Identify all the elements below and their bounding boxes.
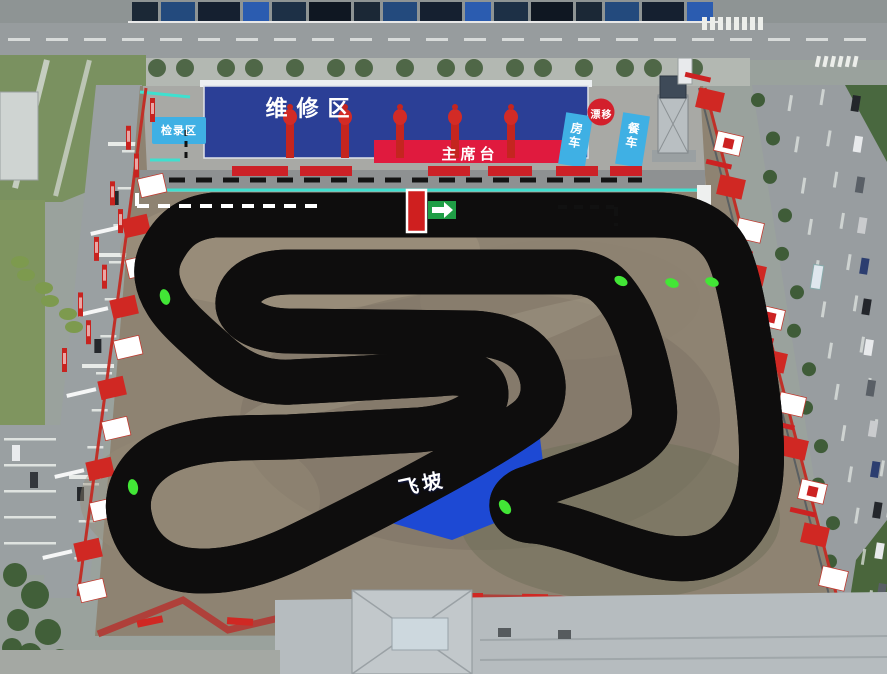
tree (814, 439, 828, 453)
lane-dash (236, 38, 258, 41)
tree (506, 59, 524, 77)
lane-dash (806, 38, 828, 41)
parking-bay-line (92, 409, 108, 412)
lane-dash (844, 38, 866, 41)
tree (148, 59, 166, 77)
site-map-canvas (0, 0, 887, 674)
lane-dash (46, 38, 68, 41)
billboard-panel (605, 2, 639, 21)
banner-flag-text (79, 297, 82, 308)
parking-bay-line (87, 446, 103, 449)
billboard-panel (198, 2, 240, 21)
tree (763, 170, 777, 184)
billboard-panel (494, 2, 528, 21)
lane-dash (464, 38, 486, 41)
lane-dash (692, 38, 714, 41)
banner-flag-text (111, 186, 114, 197)
parking-bay-line (96, 372, 112, 375)
aerial-site-photo: 维修区 检录区 主席台 漂移 房车 餐车 飞坡 (0, 0, 887, 674)
bush (41, 295, 59, 307)
building-top-left (0, 92, 38, 180)
tree (465, 59, 483, 77)
tree (751, 93, 765, 107)
crosswalk-bar (710, 17, 715, 30)
gate-booth (678, 58, 692, 84)
tree (3, 563, 27, 587)
billboard-panel (687, 2, 713, 21)
main-stage-label: 主席台 (400, 143, 540, 164)
crosswalk-bar (718, 17, 723, 30)
lane-dash (426, 38, 448, 41)
banner-flag-text (151, 103, 154, 114)
tree (21, 581, 49, 609)
tree (787, 324, 801, 338)
tree (778, 208, 792, 222)
tree (775, 247, 789, 261)
crosswalk-bar (734, 17, 739, 30)
parked-car (30, 472, 38, 488)
billboard-panel (161, 2, 195, 21)
drift-zone-label: 漂移 (588, 106, 615, 121)
red-carpet-block (232, 166, 288, 176)
lane-dash (160, 38, 182, 41)
tree (355, 59, 373, 77)
billboard-panel (642, 2, 684, 21)
tree (286, 59, 304, 77)
tree (437, 59, 455, 77)
tree (802, 362, 816, 376)
tree (327, 59, 345, 77)
red-carpet-block (300, 166, 352, 176)
lane-dash (730, 38, 752, 41)
lane-dash (312, 38, 334, 41)
lane-dash (616, 38, 638, 41)
red-carpet-block (556, 166, 598, 176)
lane-dash (768, 38, 790, 41)
banner-flag-text (103, 270, 106, 281)
banner-flag-text (87, 325, 90, 336)
crosswalk-bar (702, 17, 707, 30)
pit-pillar-knob (508, 104, 514, 110)
direction-arrow-icon (428, 201, 456, 219)
lane-dash (8, 38, 30, 41)
crosswalk-bar (750, 17, 755, 30)
tree (245, 59, 263, 77)
lane-dash (578, 38, 600, 41)
pit-pillar-knob (452, 104, 458, 110)
pit-pillar-knob (397, 104, 403, 110)
tree (176, 59, 194, 77)
lane-dash (350, 38, 372, 41)
parking-line (4, 490, 56, 493)
tree (616, 59, 634, 77)
lane-dash (122, 38, 144, 41)
banner-flag-text (135, 159, 138, 170)
start-line-marker (407, 190, 426, 232)
billboard-fence (132, 2, 713, 21)
billboard-panel (309, 2, 351, 21)
tree (766, 131, 780, 145)
billboard-panel (132, 2, 158, 21)
lane-dashes (8, 38, 866, 41)
parking-line (4, 542, 56, 545)
pit-pillar-top (393, 109, 407, 125)
red-carpet-block (610, 166, 642, 176)
crosswalk-bar (726, 17, 731, 30)
tree (575, 59, 593, 77)
crosswalk-bar (758, 17, 763, 30)
bush (35, 282, 53, 294)
tree (7, 609, 29, 631)
billboard-panel (531, 2, 573, 21)
red-carpet-block (428, 166, 470, 176)
pit-pillar (341, 122, 349, 158)
lane-dash (502, 38, 524, 41)
red-carpet-block (488, 166, 532, 176)
banner-flag-text (95, 242, 98, 253)
parking-line (4, 464, 56, 467)
lane-dash (388, 38, 410, 41)
tree (790, 285, 804, 299)
tree (534, 59, 552, 77)
parked-car (12, 445, 20, 461)
checkin-area-label: 检录区 (152, 122, 206, 138)
lane-dash (654, 38, 676, 41)
billboard-panel (383, 2, 417, 21)
banner-flag-text (127, 131, 130, 142)
billboard-panel (354, 2, 380, 21)
tree (396, 59, 414, 77)
parking-line (4, 438, 56, 441)
bush (17, 269, 35, 281)
tree (644, 59, 662, 77)
pit-pillar (286, 122, 294, 158)
lane-dash (84, 38, 106, 41)
banner-flag-text (119, 214, 122, 225)
parking-lot (0, 425, 62, 575)
lawn-left (0, 200, 45, 425)
lane-dash (274, 38, 296, 41)
pit-pillar-top (504, 109, 518, 125)
billboard-panel (243, 2, 269, 21)
banner-flag-text (63, 353, 66, 364)
bush (59, 308, 77, 320)
tree (217, 59, 235, 77)
bush (65, 321, 83, 333)
bush (11, 256, 29, 268)
billboard-panel (272, 2, 306, 21)
billboard-panel (420, 2, 462, 21)
pit-area-label: 维修区 (232, 91, 392, 123)
billboard-panel (576, 2, 602, 21)
parking-line (4, 516, 56, 519)
lane-dash (540, 38, 562, 41)
pit-pillar-top (448, 109, 462, 125)
parked-car (94, 339, 101, 353)
billboard-panel (465, 2, 491, 21)
crosswalk-bar (742, 17, 747, 30)
lane-dash (198, 38, 220, 41)
tree (35, 619, 61, 645)
